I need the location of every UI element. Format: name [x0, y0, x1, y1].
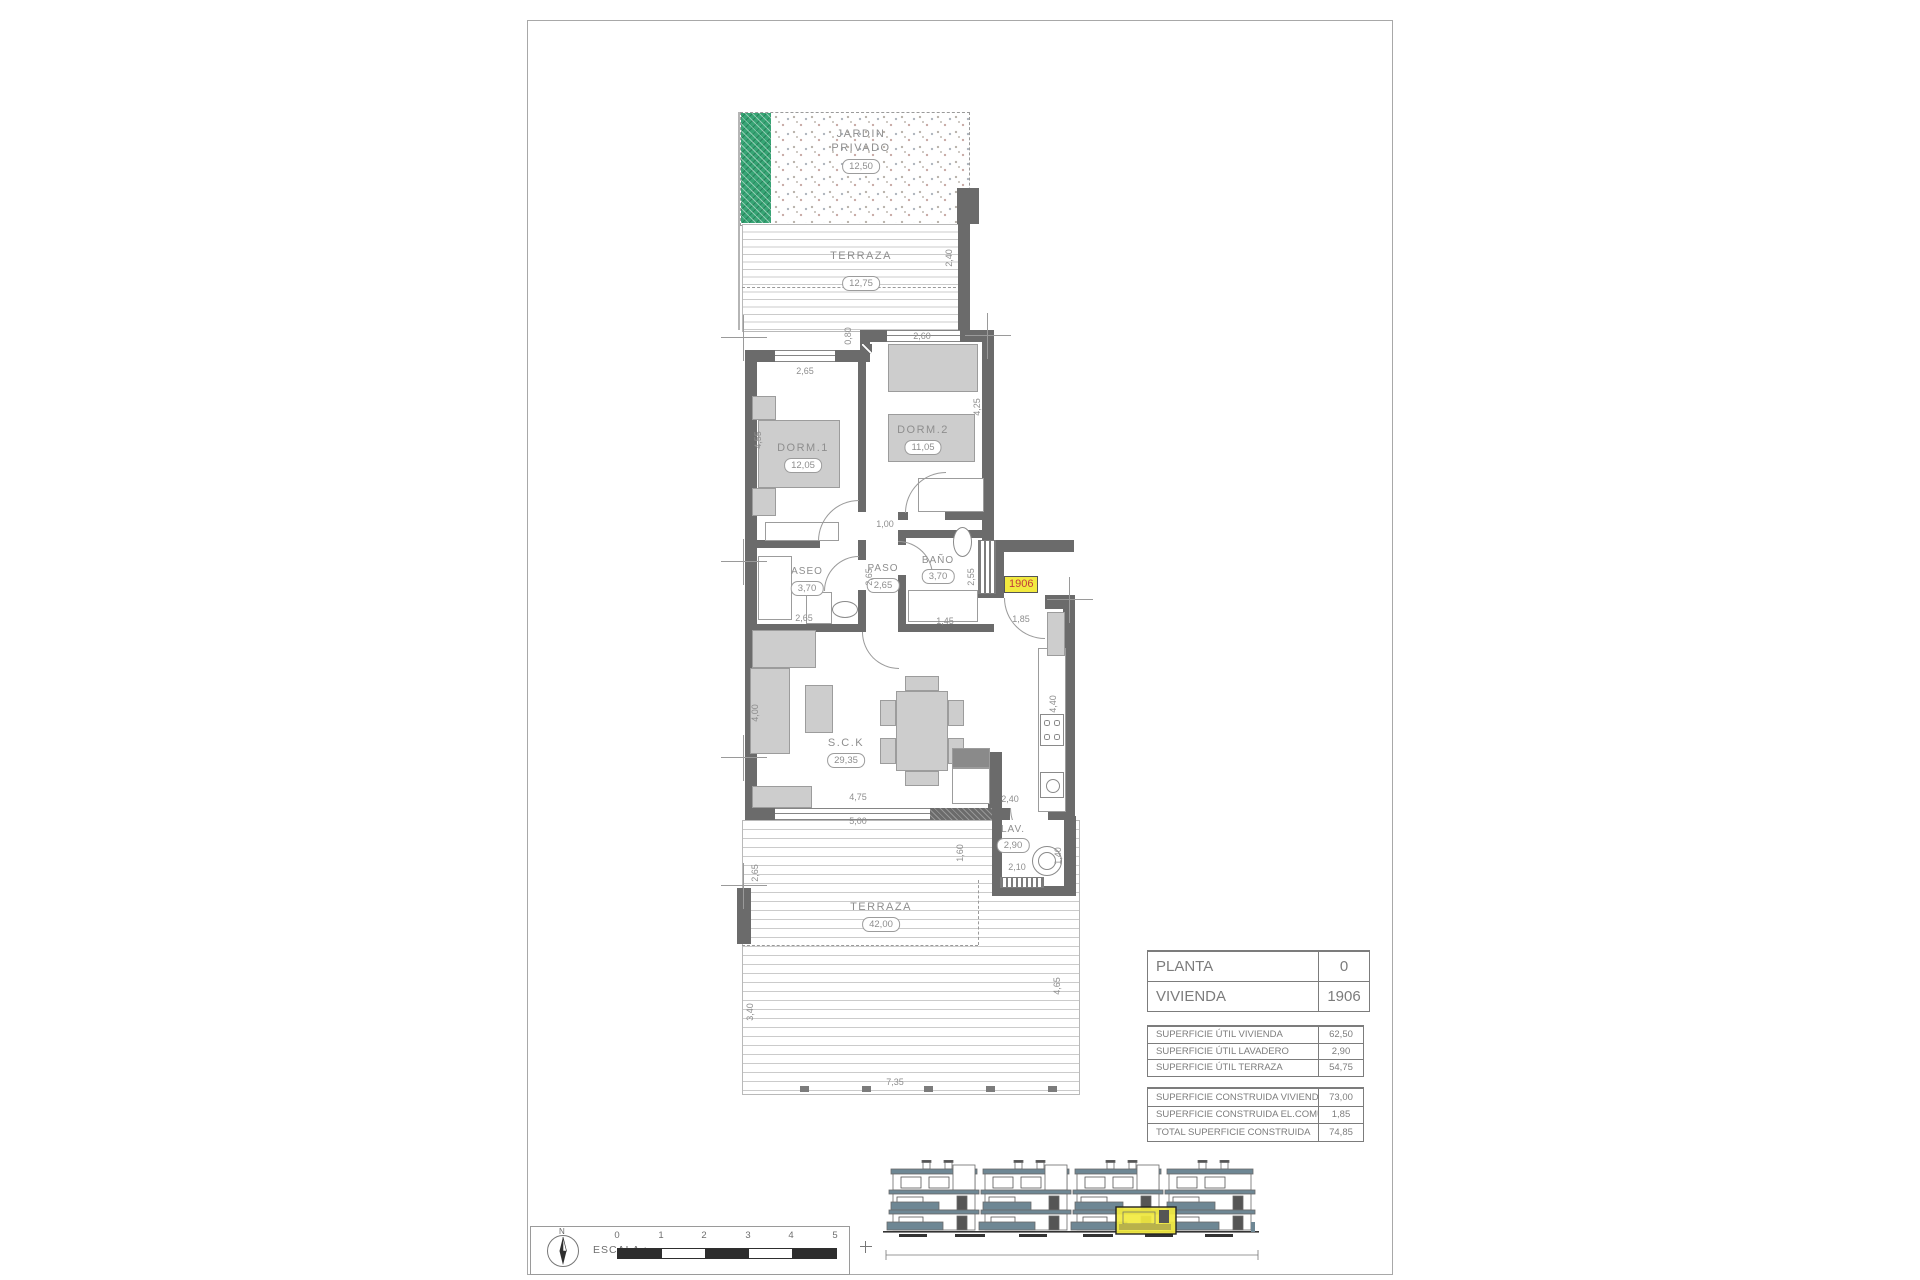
table-row-label: SUPERFICIE CONSTRUIDA VIVIENDA — [1148, 1089, 1318, 1106]
scale-box: N ESCALA : 012345 — [530, 1226, 850, 1275]
elevation-highlight-unit — [1116, 1207, 1176, 1234]
garden-label: JARDIN PRIVADO — [801, 127, 921, 155]
scale-segment — [792, 1249, 836, 1258]
room-label-aseo: ASEO — [791, 566, 823, 577]
wall — [992, 808, 1010, 820]
wall — [1064, 816, 1076, 896]
room-value-terrace-bottom: 42,00 — [862, 917, 900, 932]
scale-tick-label: 5 — [832, 1230, 837, 1241]
table-row: SUPERFICIE ÚTIL TERRAZA 54,75 — [1148, 1059, 1363, 1076]
garden-hedge-hatch — [741, 113, 771, 223]
room-label-lav: LAV. — [1001, 824, 1025, 835]
table-row-value: 73,00 — [1318, 1089, 1363, 1106]
deck-tick — [862, 1086, 871, 1092]
wall — [982, 330, 994, 556]
table-row-value: 0 — [1318, 952, 1369, 981]
wall — [958, 224, 970, 330]
chair — [905, 771, 939, 786]
scale-tick-label: 4 — [788, 1230, 793, 1241]
wall — [994, 540, 1074, 552]
table-row-value: 62,50 — [1318, 1027, 1363, 1043]
table-row: PLANTA 0 — [1148, 951, 1369, 981]
scale-segment — [618, 1249, 662, 1258]
unit-number-badge: 1906 — [1004, 576, 1038, 593]
nightstand — [752, 396, 776, 420]
cabinet-aseo — [806, 592, 832, 624]
scale-tick-label: 3 — [745, 1230, 750, 1241]
wall — [945, 512, 994, 520]
table-row: SUPERFICIE CONSTRUIDA EL.COMUNES 1,85 — [1148, 1106, 1363, 1124]
deck-tick — [986, 1086, 995, 1092]
table-row-label: VIVIENDA — [1148, 982, 1318, 1011]
scale-tick-label: 0 — [614, 1230, 619, 1241]
deck-tick — [924, 1086, 933, 1092]
scale-bar — [617, 1248, 837, 1259]
coffee-table — [805, 685, 833, 733]
room-label-sck: S.C.K — [828, 737, 864, 749]
elevation-drawing — [883, 1160, 1263, 1264]
wall — [745, 540, 820, 548]
boundary-line — [738, 112, 740, 330]
room-value-bano: 3,70 — [922, 569, 955, 584]
bathtub-bano — [908, 590, 978, 622]
wall — [745, 350, 775, 362]
room-value-lav: 2,90 — [997, 838, 1030, 853]
room-label-terrace-bottom: TERRAZA — [850, 901, 912, 913]
table-row-label: PLANTA — [1148, 952, 1318, 981]
room-value-sck: 29,35 — [827, 753, 865, 768]
useful-area-table: SUPERFICIE ÚTIL VIVIENDA 62,50 SUPERFICI… — [1147, 1025, 1364, 1077]
kitchen-cabinet — [952, 768, 990, 804]
window-dorm2 — [887, 330, 960, 342]
room-label-terrace-top: TERRAZA — [830, 250, 892, 262]
shower-aseo — [758, 556, 792, 620]
window-dorm1 — [775, 350, 835, 362]
dining-table — [896, 691, 948, 771]
room-label-dorm2: DORM.2 — [897, 424, 949, 436]
entry-closet — [1047, 612, 1065, 656]
nightstand — [752, 488, 776, 516]
wall — [988, 752, 1002, 810]
shutter-box — [862, 344, 872, 354]
washing-machine — [1032, 846, 1062, 876]
toilet-aseo — [832, 601, 858, 618]
installation-shaft — [978, 540, 996, 594]
chair — [905, 676, 939, 691]
chair — [880, 700, 896, 726]
table-row: SUPERFICIE ÚTIL VIVIENDA 62,50 — [1148, 1026, 1363, 1043]
scale-tick-label: 1 — [658, 1230, 663, 1241]
table-row-label: SUPERFICIE ÚTIL LAVADERO — [1148, 1044, 1318, 1060]
private-garden-zone: JARDIN PRIVADO 12,50 — [740, 112, 970, 226]
wall — [745, 808, 775, 820]
sofa-top — [752, 630, 816, 668]
north-compass-icon — [544, 1231, 582, 1269]
room-value-dorm1: 12,05 — [784, 458, 822, 473]
scale-ticks: 012345 — [617, 1230, 835, 1242]
scale-segment — [662, 1249, 706, 1258]
table-row-value: 74,85 — [1318, 1124, 1363, 1141]
table-row-value: 2,90 — [1318, 1044, 1363, 1060]
room-value-paso: 2,65 — [867, 578, 900, 593]
garden-label-line2: PRIVADO — [801, 141, 921, 155]
table-row-value: 1,85 — [1318, 1107, 1363, 1124]
chair — [880, 738, 896, 764]
garden-area-value: 12,50 — [842, 159, 880, 174]
room-value-terrace-top: 12,75 — [842, 276, 880, 291]
wall — [858, 362, 866, 512]
deck-tick — [1048, 1086, 1057, 1092]
table-row-value: 54,75 — [1318, 1060, 1363, 1076]
north-label: N — [559, 1227, 565, 1236]
wall — [898, 512, 908, 520]
unit-info-table: PLANTA 0 VIVIENDA 1906 — [1147, 950, 1370, 1012]
table-row-label: SUPERFICIE ÚTIL VIVIENDA — [1148, 1027, 1318, 1043]
window-living — [775, 808, 930, 820]
table-row-label: SUPERFICIE CONSTRUIDA EL.COMUNES — [1148, 1107, 1318, 1124]
sink-bano — [953, 527, 972, 557]
room-value-aseo: 3,70 — [791, 581, 824, 596]
table-row: SUPERFICIE CONSTRUIDA VIVIENDA 73,00 — [1148, 1088, 1363, 1106]
table-row: SUPERFICIE ÚTIL LAVADERO 2,90 — [1148, 1043, 1363, 1060]
scale-tick-label: 2 — [701, 1230, 706, 1241]
table-row-label: TOTAL SUPERFICIE CONSTRUIDA — [1148, 1124, 1318, 1141]
scale-segment — [749, 1249, 793, 1258]
scale-segment — [705, 1249, 749, 1258]
bed-dorm1 — [758, 420, 840, 488]
wall — [737, 888, 751, 944]
dashed-overhang-h — [742, 945, 978, 946]
garden-label-line1: JARDIN — [801, 127, 921, 141]
wall — [1045, 595, 1075, 609]
wall — [858, 540, 866, 560]
wall — [898, 624, 994, 632]
table-row: VIVIENDA 1906 — [1148, 981, 1369, 1011]
floor-plan-sheet: JARDIN PRIVADO 12,50 TERRAZA 12,75 — [0, 0, 1920, 1280]
room-value-dorm2: 11,05 — [904, 440, 941, 455]
chair — [948, 700, 964, 726]
wall — [858, 590, 866, 632]
dashed-overhang-v — [978, 880, 979, 945]
built-area-table: SUPERFICIE CONSTRUIDA VIVIENDA 73,00 SUP… — [1147, 1087, 1364, 1142]
sofa-left — [750, 668, 790, 754]
bed-dorm2-a — [888, 344, 978, 392]
wall-hatched — [930, 808, 992, 820]
kitchen-sink — [1040, 772, 1064, 798]
room-label-bano: BAÑO — [922, 555, 954, 566]
table-row: TOTAL SUPERFICIE CONSTRUIDA 74,85 — [1148, 1123, 1363, 1141]
table-row-value: 1906 — [1318, 982, 1369, 1011]
wall — [957, 188, 979, 224]
deck-tick — [800, 1086, 809, 1092]
wall — [870, 330, 887, 342]
registration-cross — [860, 1241, 872, 1253]
kitchen-peninsula — [952, 748, 990, 768]
stove-burners — [1040, 714, 1064, 746]
sideboard — [752, 786, 812, 808]
table-row-label: SUPERFICIE ÚTIL TERRAZA — [1148, 1060, 1318, 1076]
room-label-paso: PASO — [867, 563, 898, 574]
room-label-dorm1: DORM.1 — [777, 442, 829, 454]
lav-vent-grille — [1000, 877, 1044, 888]
